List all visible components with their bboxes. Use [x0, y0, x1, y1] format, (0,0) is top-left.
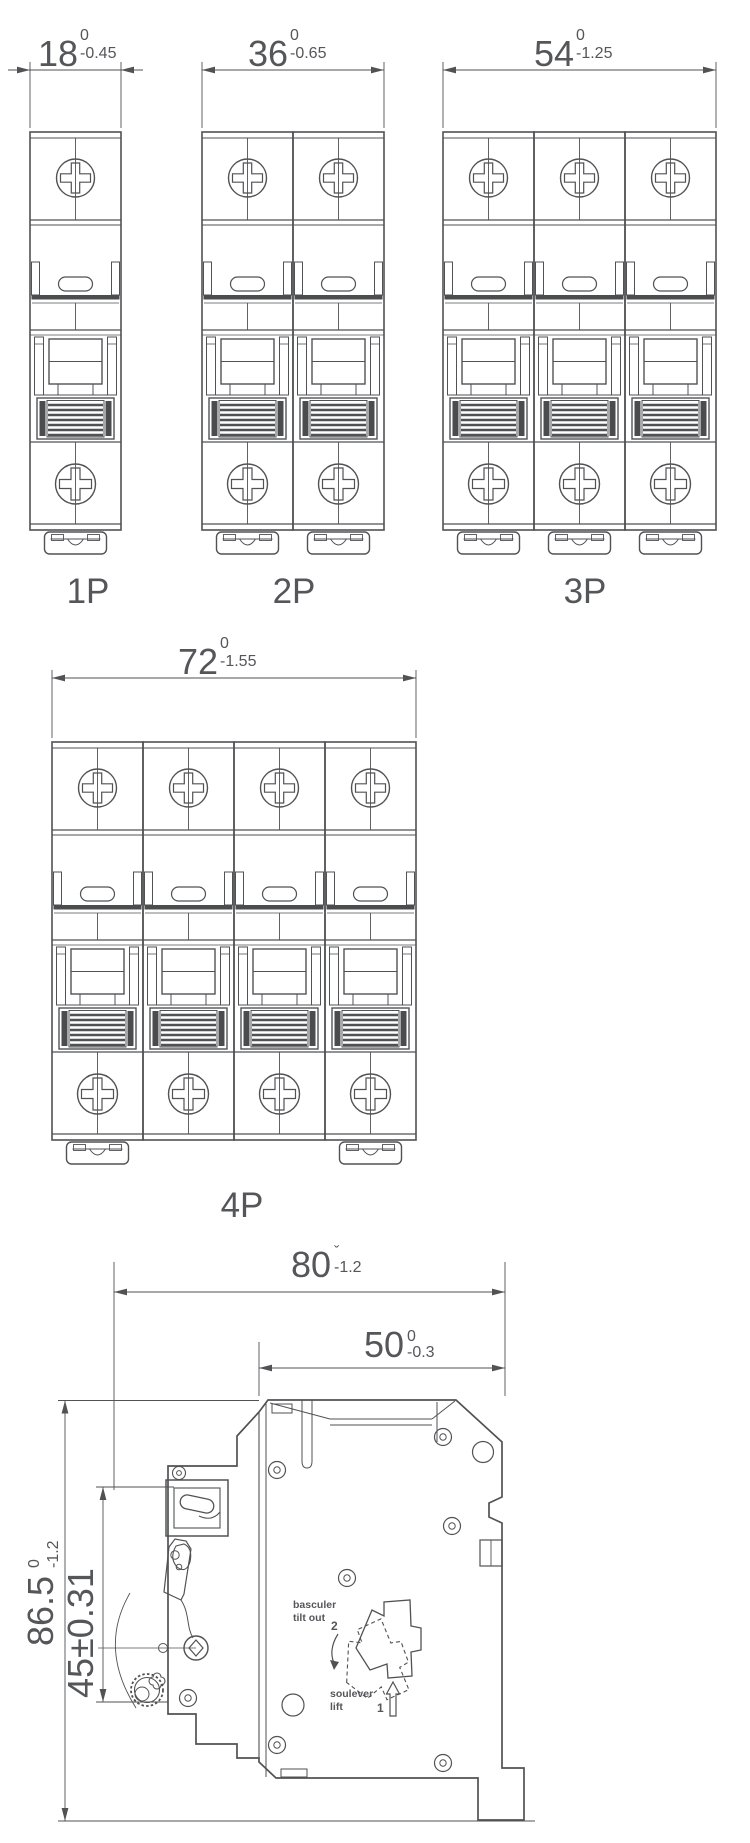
view-label: 1P	[67, 572, 110, 611]
breaker-module	[143, 742, 234, 1140]
technical-drawing-svg: 180-0.451P360-0.652P540-1.253P720-1.554P	[0, 0, 750, 1843]
breaker-module	[325, 742, 416, 1140]
view-label: 2P	[273, 572, 316, 611]
din-rail-clip	[217, 532, 279, 554]
dim-depth-total-tol-bottom: -1.2	[334, 1259, 362, 1276]
toggle-ribbed-handle	[300, 398, 377, 439]
toggle-ribbed-handle	[450, 398, 527, 439]
front-view-3p: 540-1.253P	[443, 27, 716, 611]
dim-depth-body-tol-bottom: -0.3	[407, 1344, 435, 1361]
dim-depth-total-value: 80	[291, 1244, 331, 1285]
side-outline	[168, 1400, 524, 1820]
side-view: basculer tilt out 2 soulever lift 1 80 ˇ…	[20, 1244, 535, 1821]
dimension-width-3p: 540-1.25	[443, 27, 716, 128]
clip-diagram-solid	[356, 1600, 421, 1678]
din-rail-clip	[340, 1142, 402, 1164]
din-rail-clip	[458, 532, 520, 554]
view-label: 3P	[564, 572, 607, 611]
dim-height-total-tol-bottom: -1.2	[45, 1540, 62, 1568]
dimension-width-2p: 360-0.65	[202, 27, 384, 128]
dim-depth-body-value: 50	[364, 1324, 404, 1365]
toggle-ribbed-handle	[332, 1008, 409, 1049]
toggle-lever-mechanism	[98, 1539, 208, 1708]
front-view-4p: 720-1.554P	[52, 635, 416, 1225]
toggle-ribbed-handle	[209, 398, 286, 439]
lift-label-en: lift	[330, 1701, 343, 1713]
tilt-label-en: tilt out	[293, 1612, 326, 1624]
dim-width-tol-bottom: -0.65	[290, 45, 327, 62]
dimension-depth-total: 80 ˇ -1.2	[114, 1244, 505, 1490]
toggle-ribbed-handle	[541, 398, 618, 439]
mounting-hole	[473, 1442, 494, 1463]
din-rail-clip	[549, 532, 611, 554]
dim-width-value: 18	[38, 33, 78, 74]
dim-width-value: 54	[534, 33, 574, 74]
dim-depth-body-tol-top: 0	[407, 1328, 416, 1345]
dimension-depth-body: 50 0 -0.3	[259, 1324, 505, 1396]
lift-label-fr: soulever	[330, 1688, 373, 1700]
tilt-label-fr: basculer	[293, 1599, 336, 1611]
din-rail-clip	[308, 532, 370, 554]
breaker-module	[202, 132, 293, 530]
front-view-2p: 360-0.652P	[202, 27, 384, 611]
din-rail-clip	[67, 1142, 129, 1164]
dimension-width-1p: 180-0.45	[8, 27, 143, 128]
side-internal-lines	[259, 1400, 502, 1777]
toggle-ribbed-handle	[632, 398, 709, 439]
toggle-ribbed-handle	[150, 1008, 227, 1049]
tilt-step-number: 2	[331, 1619, 338, 1633]
din-rail-clip	[45, 532, 107, 554]
dim-width-tol-top: 0	[290, 27, 299, 44]
breaker-module	[625, 132, 716, 530]
breaker-module	[234, 742, 325, 1140]
dimension-width-4p: 720-1.55	[52, 635, 416, 738]
front-view-1p: 180-0.451P	[8, 27, 143, 611]
dim-handle-height-value: 45±0.31	[60, 1568, 101, 1698]
breaker-module	[534, 132, 625, 530]
dimension-handle-height: 45±0.31	[60, 1487, 174, 1702]
dim-width-value: 36	[248, 33, 288, 74]
toggle-ribbed-handle	[37, 398, 114, 439]
toggle-ribbed-handle	[59, 1008, 136, 1049]
breaker-module	[52, 742, 143, 1140]
dim-width-value: 72	[178, 641, 218, 682]
dim-width-tol-bottom: -1.55	[220, 653, 257, 670]
lever-swing-arc	[115, 1593, 136, 1708]
dim-height-total-tol-top: 0	[26, 1559, 43, 1568]
breaker-module	[443, 132, 534, 530]
dim-height-total-value: 86.5	[20, 1576, 61, 1646]
tilt-arrow	[332, 1634, 338, 1665]
dim-width-tol-bottom: -1.25	[576, 45, 613, 62]
toggle-ribbed-handle	[241, 1008, 318, 1049]
breaker-module	[30, 132, 121, 530]
front-views-layer: 180-0.451P360-0.652P540-1.253P720-1.554P	[8, 27, 716, 1225]
din-rail-clip	[640, 532, 702, 554]
breaker-module	[293, 132, 384, 530]
view-label: 4P	[221, 1186, 264, 1225]
dim-width-tol-top: 0	[576, 27, 585, 44]
mounting-hole	[282, 1694, 304, 1716]
din-clip-annotation: basculer tilt out 2 soulever lift 1	[293, 1599, 421, 1716]
drawing-sheet: 180-0.451P360-0.652P540-1.253P720-1.554P	[0, 0, 750, 1843]
dim-width-tol-top: 0	[220, 635, 229, 652]
dim-width-tol-top: 0	[80, 27, 89, 44]
dim-width-tol-bottom: -0.45	[80, 45, 117, 62]
adjustment-gear	[131, 1673, 197, 1707]
lift-step-number: 1	[377, 1701, 384, 1715]
lift-arrow	[387, 1682, 400, 1716]
toggle-window	[166, 1480, 228, 1536]
toggle-handle	[179, 1494, 215, 1515]
